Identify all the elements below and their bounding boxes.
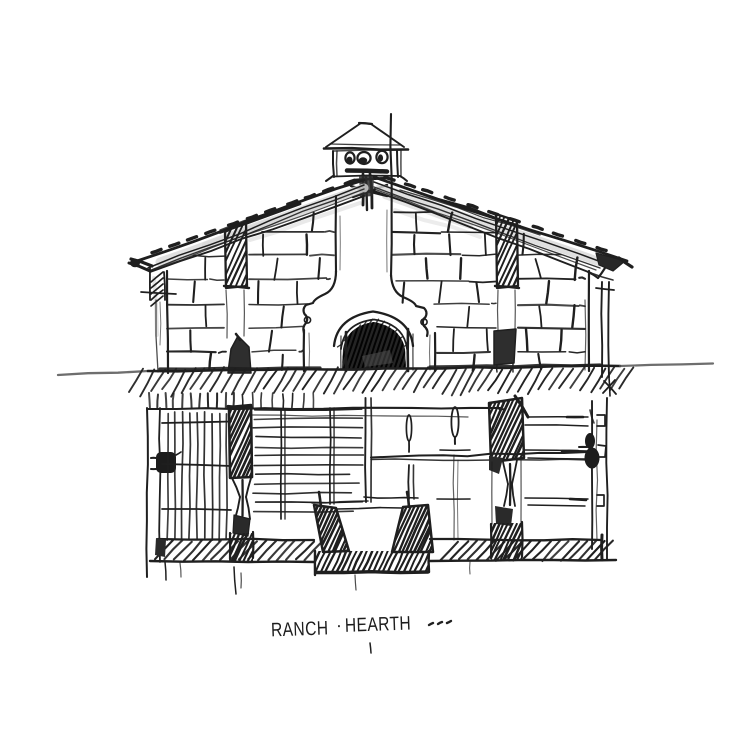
svg-text:RANCH: RANCH <box>271 617 329 641</box>
svg-text:·: · <box>336 615 343 635</box>
svg-text:HEARTH: HEARTH <box>345 612 412 636</box>
